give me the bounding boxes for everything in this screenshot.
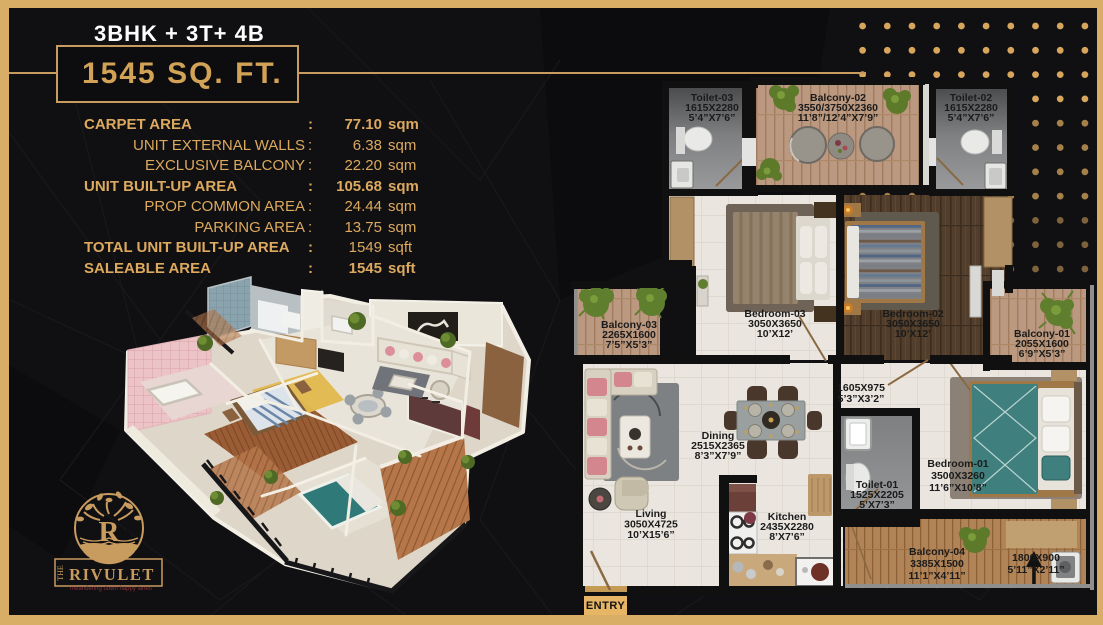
svg-text:RIVULET: RIVULET [69, 565, 155, 584]
svg-text:THE: THE [56, 565, 65, 581]
svg-text:R: R [99, 516, 121, 548]
svg-text:meandering down happy lanes: meandering down happy lanes [70, 586, 152, 592]
